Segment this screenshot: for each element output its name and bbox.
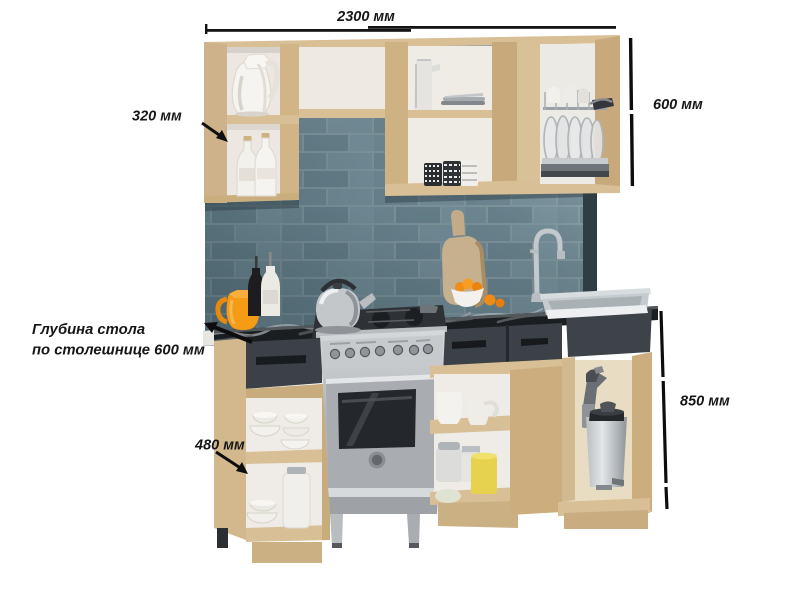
svg-text:320 мм: 320 мм xyxy=(132,109,182,125)
svg-text:2300 мм: 2300 мм xyxy=(336,9,395,25)
svg-text:600 мм: 600 мм xyxy=(653,97,703,113)
svg-text:Глубина стола: Глубина стола xyxy=(32,322,145,338)
svg-text:по столешнице 600 мм: по столешнице 600 мм xyxy=(32,343,205,359)
svg-text:850 мм: 850 мм xyxy=(680,394,730,410)
svg-text:480 мм: 480 мм xyxy=(194,438,245,454)
